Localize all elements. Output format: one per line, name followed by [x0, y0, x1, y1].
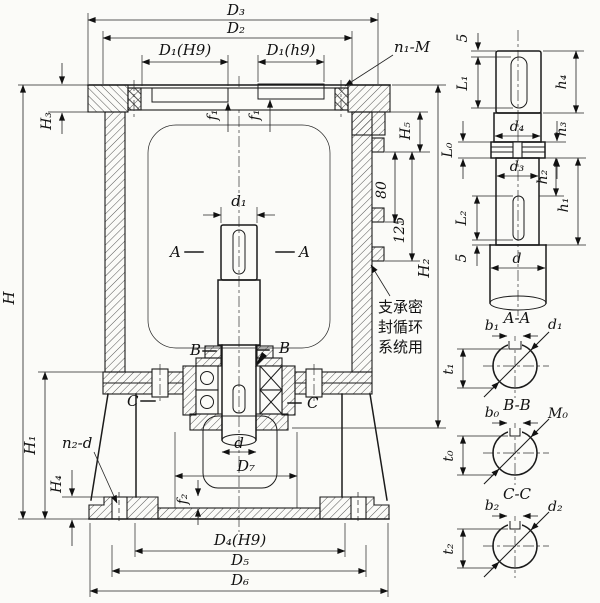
right-wall-boss-2 — [372, 208, 384, 222]
foundation-bolt-hole-right — [351, 497, 366, 519]
dim-label-5-bottom: 5 — [454, 253, 470, 262]
right-wall-section — [352, 112, 372, 372]
right-wall-boss-1 — [372, 138, 384, 152]
dim-label-b2: b₂ — [485, 498, 500, 514]
right-wall-boss-3 — [372, 247, 384, 261]
n2-d-leader — [94, 452, 117, 503]
bearing-unit: B B — [103, 339, 372, 440]
section-view-B-B: B-B b₀ M₀ t₀ — [441, 396, 568, 485]
dim-label-H: H — [0, 291, 18, 306]
main-view: D₃ D₂ D₁(H9) D₁(h9) n₁-M — [0, 1, 446, 597]
dim-label-D7: D₇ — [236, 457, 255, 475]
bottom-dimension-lines: D₄(H9) D₅ D₆ — [90, 523, 388, 597]
shaft-top-section — [496, 51, 541, 113]
dim-label-t0: t₀ — [441, 450, 457, 462]
dim-label-D6: D₆ — [230, 571, 249, 589]
cover-screw-left — [128, 88, 141, 110]
section-marker-B-left: B — [189, 341, 201, 359]
ball-bearing-lower-left — [196, 390, 218, 414]
dim-label-L1: L₁ — [455, 76, 471, 92]
dim-label-h4: h₄ — [554, 74, 570, 89]
hub-ring-left — [196, 358, 221, 366]
section-title-CC: C-C — [503, 485, 532, 503]
dim-label-d1-section: d₁ — [548, 317, 563, 333]
dim-label-D2: D₂ — [226, 19, 245, 37]
dim-label-D1H9: D₁(H9) — [158, 41, 212, 59]
hub-ring-right — [257, 358, 282, 366]
callout-n1-M: n₁-M — [394, 38, 431, 56]
dim-label-b1: b₁ — [485, 318, 500, 334]
gland-cap-left — [205, 346, 221, 358]
shaft-detail-view: 5 L₁ h₄ d₄ L₀ h₃ d₃ — [440, 30, 586, 316]
dim-label-f2: f₂ — [175, 493, 191, 505]
section-title-BB: B-B — [502, 396, 530, 414]
section-title-AA: A-A — [502, 309, 531, 327]
dim-label-h2: h₂ — [535, 169, 551, 184]
dim-label-b0: b₀ — [485, 405, 500, 421]
dim-label-5-top: 5 — [455, 33, 471, 42]
seal-system-note: 支承密 封循环 系统用 — [378, 299, 423, 356]
note-line-1: 支承密 — [378, 299, 423, 316]
cover-flange-left-section — [88, 85, 128, 112]
dim-label-H5: H₅ — [398, 122, 414, 141]
dim-label-d3: d₃ — [510, 159, 525, 175]
section-marker-C-left: C — [127, 392, 139, 410]
dim-label-t2: t₂ — [441, 543, 457, 555]
dim-label-D4H9: D₄(H9) — [213, 531, 267, 549]
shaft-top-keyway — [511, 57, 527, 108]
dim-label-D5: D₅ — [230, 551, 249, 569]
section-marker-A-left: A — [168, 243, 181, 261]
dim-label-h3: h₃ — [554, 121, 570, 136]
note-line-3: 系统用 — [378, 339, 423, 356]
note-leader — [371, 265, 390, 296]
section-view-A-A: A-A b₁ d₁ t₁ — [441, 309, 563, 398]
dim-label-D1h9: D₁(h9) — [266, 41, 316, 59]
gearbox-drawing-svg: D₃ D₂ D₁(H9) D₁(h9) n₁-M — [0, 0, 600, 603]
section-marker-C-right: C — [307, 394, 319, 412]
section-marker-A-right: A — [297, 243, 310, 261]
dim-label-f1-right: f₁ — [247, 110, 263, 122]
collar-lock-slot — [513, 142, 522, 158]
dim-label-H1: H₁ — [21, 435, 39, 455]
dim-label-t1: t₁ — [441, 363, 457, 374]
hub-wall-right — [282, 366, 295, 415]
cover-flange-right-section — [348, 85, 390, 112]
callout-n2-d: n₂-d — [62, 434, 92, 452]
left-dimension-lines: H H₃ H₁ H₄ n₂-d — [0, 63, 117, 546]
dim-label-d-shaft: d — [513, 251, 522, 267]
right-wall-ledge — [352, 112, 385, 135]
dim-label-d-bottom: d — [234, 434, 244, 452]
top-cover-assembly: f₁ f₁ — [18, 80, 390, 132]
dim-label-d2: d₂ — [548, 499, 563, 515]
dim-label-H2: H₂ — [415, 258, 433, 278]
foundation-bolt-hole-left — [112, 497, 127, 519]
dim-label-d4: d₄ — [510, 119, 525, 135]
dim-label-L0: L₀ — [440, 142, 456, 158]
hub-wall-left — [183, 366, 196, 415]
cover-screw-right — [335, 88, 348, 110]
dim-label-80: 80 — [374, 181, 390, 199]
dim-label-M0: M₀ — [547, 406, 568, 422]
dim-label-H4: H₄ — [49, 475, 65, 494]
shaft-d3-keyway — [513, 196, 524, 240]
gland-cap-right — [257, 346, 273, 358]
technical-drawing: D₃ D₂ D₁(H9) D₁(h9) n₁-M — [0, 0, 600, 603]
dim-label-L2: L₂ — [454, 210, 470, 226]
bottom-cover-band — [158, 508, 320, 519]
dim-label-h1: h₁ — [556, 198, 572, 213]
ball-bearing-upper-left — [196, 366, 218, 390]
top-dimension-lines: D₃ D₂ D₁(H9) D₁(h9) n₁-M — [88, 1, 431, 86]
section-marker-B-right: B — [278, 339, 290, 357]
dim-label-125: 125 — [392, 217, 408, 244]
dim-label-d1: d₁ — [231, 192, 247, 210]
dim-label-H3: H₃ — [39, 112, 55, 131]
section-view-C-C: C-C b₂ d₂ t₂ — [441, 485, 563, 578]
dim-label-D3: D₃ — [226, 1, 245, 19]
dim-label-f1-left: f₁ — [205, 110, 221, 122]
left-wall-section — [105, 112, 125, 372]
note-line-2: 封循环 — [378, 319, 423, 336]
